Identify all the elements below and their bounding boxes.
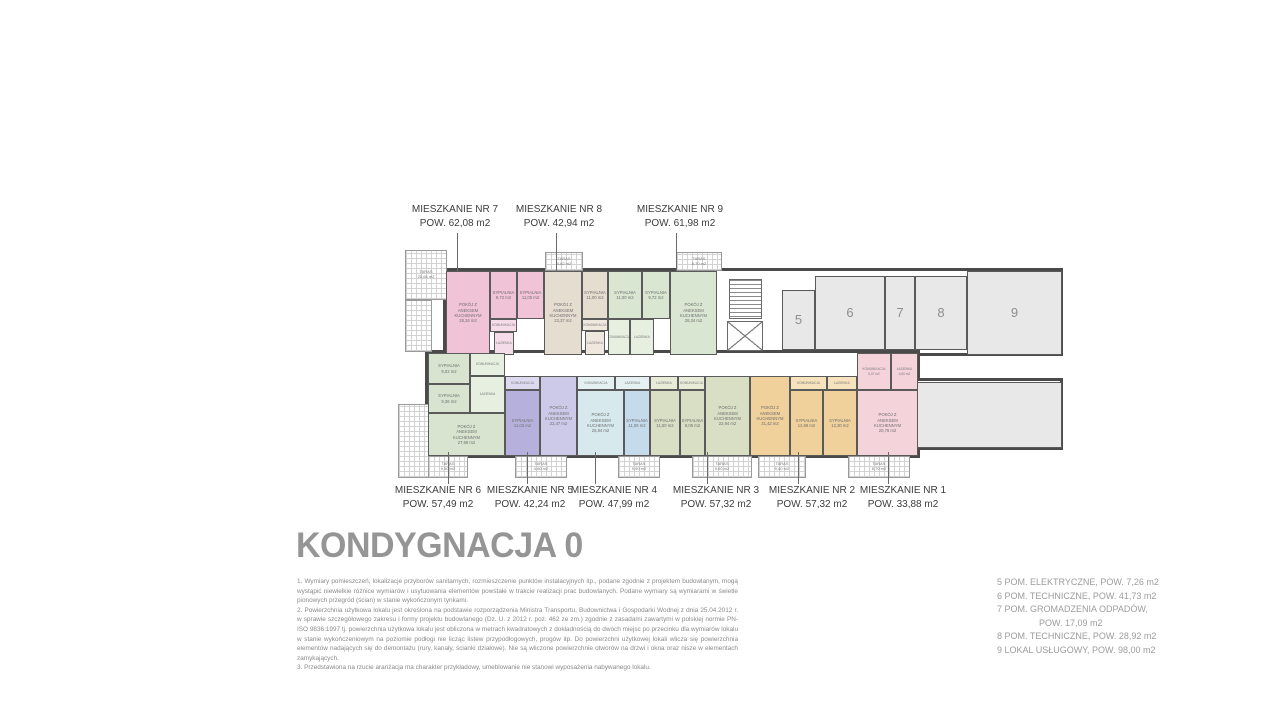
- apartment-label-3-leader-line: [707, 452, 708, 484]
- apt8-bedroom: SYPIALNIA 11,00 m2: [582, 271, 608, 319]
- staircase-icon: [729, 279, 762, 319]
- apt1-bathroom: ŁAZIENKA 4,60 m2: [891, 353, 918, 390]
- apartment-label-8-leader-line: [556, 233, 557, 271]
- elevator-icon: [727, 321, 763, 351]
- apt7-bedroom-2: SYPIALNIA 11,00 m2: [517, 271, 544, 319]
- apartment-label-1: MIESZKANIE NR 1POW. 33,88 m2: [860, 484, 946, 512]
- apartment-title: MIESZKANIE NR 9: [637, 203, 723, 217]
- terrace-top-apt9: TARAS 8,70 m2: [676, 252, 722, 271]
- room-8-technical: 8: [915, 276, 967, 350]
- legend: 5 POM. ELEKTRYCZNE, POW. 7,26 m26 POM. T…: [997, 576, 1159, 657]
- legend-item-1: 5 POM. ELEKTRYCZNE, POW. 7,26 m2: [997, 576, 1159, 590]
- apt4-hall: KOMUNIKACJA: [577, 376, 615, 390]
- floor-plan-canvas: TARAS 20,66 m2TARAS 4,82 m2TARAS 8,70 m2…: [0, 0, 1280, 720]
- apartment-title: MIESZKANIE NR 3: [673, 484, 759, 498]
- apartment-area: POW. 42,24 m2: [487, 498, 573, 512]
- terrace-apt1: TARAS 8,70 m2: [848, 456, 910, 478]
- legend-item-2: 6 POM. TECHNICZNE, POW. 41,73 m2: [997, 590, 1159, 604]
- apt4-bedroom: SYPIALNIA 11,06 m2: [624, 390, 650, 456]
- apt9-bedroom-1: SYPIALNIA 11,00 m2: [608, 271, 642, 319]
- room-9-service: 9: [967, 271, 1062, 355]
- apartment-label-1-leader-line: [888, 452, 889, 484]
- apartment-area: POW. 57,32 m2: [673, 498, 759, 512]
- apartment-label-8: MIESZKANIE NR 8POW. 42,94 m2: [516, 203, 602, 231]
- apt5-living: POKÓJ Z ANEKSEM KUCHENNYM 22,47 m2: [540, 376, 577, 456]
- apartment-area: POW. 62,08 m2: [412, 217, 498, 231]
- room-5-electrical: 5: [782, 290, 815, 350]
- terrace-top-left: TARAS 20,66 m2: [405, 250, 447, 300]
- apartment-label-5-leader-line: [527, 452, 528, 484]
- apartment-title: MIESZKANIE NR 4: [571, 484, 657, 498]
- apartment-title: MIESZKANIE NR 7: [412, 203, 498, 217]
- apt7-bathroom: ŁAZIENKA: [494, 332, 514, 355]
- room-7-waste: 7: [885, 276, 915, 350]
- apartment-label-6: MIESZKANIE NR 6POW. 57,49 m2: [395, 484, 481, 512]
- apartment-area: POW. 57,49 m2: [395, 498, 481, 512]
- apartment-label-9-leader-line: [676, 233, 677, 271]
- apt8-hall: KOMUNIKACJA: [582, 319, 608, 331]
- terrace-top-apt8: TARAS 4,82 m2: [545, 252, 583, 271]
- apartment-label-6-leader-line: [448, 452, 449, 484]
- apt2-bedroom-1: SYPIALNIA 12,69 m2: [790, 390, 823, 456]
- terrace-left-side: [405, 300, 432, 352]
- apt5-hall: KOMUNIKACJA: [505, 376, 540, 390]
- apt5-bedroom: SYPIALNIA 11,03 m2: [505, 390, 540, 456]
- notes: 1. Wymiary pomieszczeń, lokalizacje przy…: [297, 577, 738, 673]
- apartment-area: POW. 57,32 m2: [769, 498, 855, 512]
- apt8-bathroom: ŁAZIENKA: [585, 331, 605, 355]
- apt8-living: POKÓJ Z ANEKSEM KUCHENNYM 23,37 m2: [544, 271, 582, 355]
- apartment-title: MIESZKANIE NR 5: [487, 484, 573, 498]
- note-item-3: 3. Przedstawiona na rzucie aranżacja ma …: [297, 663, 738, 673]
- apartment-label-4: MIESZKANIE NR 4POW. 47,99 m2: [571, 484, 657, 512]
- apt9-living: POKÓJ Z ANEKSEM KUCHENNYM 28,34 m2: [670, 271, 717, 355]
- apt1-hall: KOMUNIKACJA 6,07 m2: [857, 353, 891, 390]
- apartment-label-7: MIESZKANIE NR 7POW. 62,08 m2: [412, 203, 498, 231]
- apt2-bathroom: ŁAZIENKA: [827, 376, 857, 390]
- legend-item-3: 7 POM. GROMADZENIA ODPADÓW,: [997, 603, 1159, 617]
- apt9-hall: KOMUNIKACJA: [608, 319, 630, 355]
- apartment-label-3: MIESZKANIE NR 3POW. 57,32 m2: [673, 484, 759, 512]
- apt3-bedroom-2: SYPIALNIA 8,05 m2: [680, 390, 705, 456]
- apt3-hall: KOMUNIKACJA: [678, 376, 705, 390]
- apt6-bathroom: ŁAZIENKA: [470, 376, 505, 413]
- page-title: KONDYGNACJA 0: [296, 526, 583, 566]
- apt2-living: POKÓJ Z ANEKSEM KUCHENNYM 31,42 m2: [750, 376, 790, 456]
- apt3-bathroom: ŁAZIENKA: [650, 376, 678, 390]
- terrace-apt5: TARAS 4,60 m2: [515, 456, 567, 478]
- apt6-bedroom-2: SYPIALNIA 9,36 m2: [428, 384, 470, 413]
- apartment-title: MIESZKANIE NR 6: [395, 484, 481, 498]
- apt7-bedroom-1: SYPIALNIA 9,72 m2: [490, 271, 517, 319]
- apt4-living: POKÓJ Z ANEKSEM KUCHENNYM 26,84 m2: [577, 390, 624, 456]
- apartment-area: POW. 61,98 m2: [637, 217, 723, 231]
- apartment-label-7-leader-line: [457, 233, 458, 271]
- legend-item-3-cont: POW. 17,09 m2: [997, 617, 1159, 631]
- apartment-label-9: MIESZKANIE NR 9POW. 61,98 m2: [637, 203, 723, 231]
- legend-item-5: 9 LOKAL USŁUGOWY, POW. 98,00 m2: [997, 644, 1159, 658]
- apartment-label-4-leader-line: [595, 452, 596, 484]
- apt9-bathroom: ŁAZIENKA: [630, 319, 654, 355]
- apt6-bedroom-1: SYPIALNIA 9,02 m2: [428, 353, 470, 384]
- note-item-2: 2. Powierzchnia użytkowa lokalu jest okr…: [297, 606, 738, 664]
- apt1-living: POKÓJ Z ANEKSEM KUCHENNYM 20,76 m2: [857, 390, 918, 456]
- apartment-label-5: MIESZKANIE NR 5POW. 42,24 m2: [487, 484, 573, 512]
- apt2-bedroom-2: SYPIALNIA 12,30 m2: [823, 390, 857, 456]
- apartment-area: POW. 42,94 m2: [516, 217, 602, 231]
- legend-item-4: 8 POM. TECHNICZNE, POW. 28,92 m2: [997, 630, 1159, 644]
- apt7-living: POKÓJ Z ANEKSEM KUCHENNYM 28,34 m2: [446, 271, 490, 355]
- apartment-area: POW. 33,88 m2: [860, 498, 946, 512]
- apt6-living: POKÓJ Z ANEKSEM KUCHENNYM 27,68 m2: [428, 413, 505, 456]
- apt3-bedroom-1: SYPIALNIA 11,50 m2: [650, 390, 680, 456]
- apt2-hall: KOMUNIKACJA: [790, 376, 827, 390]
- apt6-hall: KOMUNIKACJA: [470, 353, 505, 376]
- apt3-living: POKÓJ Z ANEKSEM KUCHENNYM 22,94 m2: [705, 376, 750, 456]
- apartment-label-2-leader-line: [798, 452, 799, 484]
- apartment-area: POW. 47,99 m2: [571, 498, 657, 512]
- terrace-apt4: TARAS 9,90 m2: [618, 456, 660, 478]
- room-6-technical: 6: [815, 276, 885, 350]
- apartment-title: MIESZKANIE NR 8: [516, 203, 602, 217]
- apt7-hall: KOMUNIKACJA: [490, 319, 517, 332]
- apt9-bedroom-2: SYPIALNIA 9,72 m2: [642, 271, 670, 319]
- apartment-label-2: MIESZKANIE NR 2POW. 57,32 m2: [769, 484, 855, 512]
- terrace-apt3: TARAS 9,60 m2: [692, 456, 752, 478]
- apt4-bathroom: ŁAZIENKA: [615, 376, 650, 390]
- note-item-1: 1. Wymiary pomieszczeń, lokalizacje przy…: [297, 577, 738, 606]
- apartment-title: MIESZKANIE NR 1: [860, 484, 946, 498]
- apartment-title: MIESZKANIE NR 2: [769, 484, 855, 498]
